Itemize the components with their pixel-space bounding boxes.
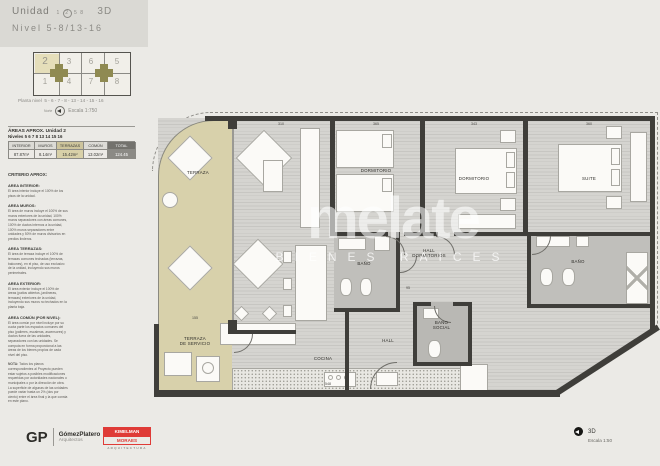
criteria-body-comun: El área común por nivel incluye por su c… — [8, 321, 68, 358]
terrace-table — [162, 192, 178, 208]
bidet — [360, 278, 372, 296]
caption-label: Planta nivel — [18, 98, 42, 103]
gomez-platero-logo: GP GómezPlatero Arquitectos — [26, 428, 100, 446]
wall-bano1-south — [334, 308, 400, 312]
nightstand — [606, 196, 622, 209]
shower — [626, 252, 648, 304]
dim-dormitorio2: 343 — [425, 122, 523, 126]
dining-chair — [283, 251, 292, 263]
unit-selector-row: Unidad 1 2 5 8 3D — [12, 6, 148, 18]
level-label: Nivel — [12, 23, 42, 33]
criteria-title-muros: AREA MUROS: — [8, 203, 68, 208]
criteria-body-exterior: El área exterior incluye el 100% de área… — [8, 287, 68, 310]
view-mode-label[interactable]: 3D — [97, 6, 112, 17]
burner — [328, 375, 333, 380]
logo-divider — [53, 428, 54, 446]
wall-right — [650, 116, 655, 332]
val-comun: 13.02m² — [84, 150, 108, 159]
wall-dorm1-dorm2 — [420, 116, 425, 234]
room-label-dormitorio1: DORMITORIO — [332, 168, 420, 173]
nightstand — [606, 126, 622, 139]
dim-cocina: 548 — [268, 382, 388, 386]
room-label-bano-suite: BAÑO — [548, 259, 608, 264]
north-icon — [55, 106, 65, 116]
key-plan-caption: Planta nivel 5 - 6 - 7 - 8 - 13 - 14 - 1… — [18, 98, 104, 103]
gp-subtitle: Arquitectos — [59, 438, 101, 443]
key-plan-gridline — [34, 73, 130, 74]
coffee-table — [263, 160, 283, 192]
dim-suite: 360 — [528, 122, 650, 126]
pillow — [611, 148, 620, 165]
gp-initials: GP — [26, 429, 48, 446]
key-plan-core-icon — [95, 69, 113, 77]
divider — [8, 126, 135, 127]
pillow — [506, 152, 515, 168]
wall-living-dorm1 — [330, 116, 335, 234]
col-terrazas: TERRAZAS — [57, 142, 84, 150]
note-body: Todos los planos correspondientes al Pro… — [8, 362, 68, 403]
wall-bano-social-north — [453, 302, 472, 306]
criteria-heading: CRITERIO APROX: — [8, 172, 68, 177]
footer-scale-label: Escala 1:50 — [588, 438, 612, 443]
dim-dormitorio1: 365 — [332, 122, 420, 126]
wall-bedroom-south — [404, 232, 438, 236]
km-line2: MORAES — [103, 436, 151, 445]
washer-drum — [202, 362, 214, 374]
wall-left-service — [154, 324, 159, 397]
keyplan-scale-label: Escala 1:750 — [68, 108, 97, 114]
room-label-hall-dormitorios: HALL DORMITORIOS — [398, 248, 460, 258]
unit-option-5[interactable]: 5 — [74, 10, 78, 16]
level-row: Nivel 5-8/13-16 — [12, 23, 148, 33]
area-table: ÁREAS APROX. Unidad 2 Niveles 5 6 7 8 13… — [8, 126, 135, 159]
val-muros: 8.14m² — [35, 150, 57, 159]
dining-table — [295, 245, 327, 321]
criteria-body-terrazas: El área de terraza incluye el 100% de te… — [8, 252, 68, 275]
nightstand — [500, 130, 516, 143]
wardrobe — [630, 132, 647, 202]
toilet — [340, 278, 352, 296]
criteria-title-exterior: AREA EXTERIOR: — [8, 281, 68, 286]
terrace-glass-line — [232, 120, 234, 330]
wall-bano-suite-south — [527, 304, 653, 308]
val-interior: 87.87m² — [9, 150, 35, 159]
area-table-grid: INTERIOR MUROS TERRAZAS COMÚN TOTAL 87.8… — [8, 141, 135, 159]
col-interior: INTERIOR — [9, 142, 35, 150]
dim-living: 310 — [232, 122, 330, 126]
caption-levels: 5 - 6 - 7 - 8 - 13 - 14 - 15 - 16 — [44, 98, 103, 103]
wardrobe — [458, 214, 516, 229]
key-plan-unit-5: 5 — [108, 57, 126, 66]
dining-chair — [283, 278, 292, 290]
criteria-title-terrazas: AREA TERRAZAS: — [8, 246, 68, 251]
criteria-body-muros: El área de muros incluye el 100% de sus … — [8, 209, 68, 241]
level-range: 5-8/13-16 — [47, 23, 104, 33]
wall-bano-social-south — [413, 362, 472, 366]
unit-option-1[interactable]: 1 — [56, 10, 60, 16]
nightstand — [500, 198, 516, 211]
km-subtitle: ARQUITECTURA — [103, 446, 151, 450]
room-label-bano1: BAÑO — [334, 261, 394, 266]
wall-bedroom-south — [330, 232, 388, 236]
key-plan-core-icon — [50, 69, 68, 77]
wall-bano-social-east — [468, 302, 472, 366]
bidet — [562, 268, 575, 286]
criteria-body-interior: El área interior incluye el 100% de los … — [8, 189, 68, 198]
wall-bedroom-south — [454, 232, 650, 236]
floor-plan: TERRAZA DORMITORIO DORMITORIO SUITE HALL… — [148, 106, 660, 408]
area-table-subtitle: Niveles 5 6 7 8 13 14 15 16 — [8, 134, 135, 139]
km-line1: KIMELMAN — [103, 427, 151, 436]
laundry-tub — [164, 352, 192, 376]
room-label-cocina: COCINA — [288, 356, 358, 361]
gp-name: GómezPlatero — [59, 431, 101, 438]
wall-bottom — [158, 390, 560, 397]
wall-top — [205, 116, 655, 121]
dim-pasillo: 95 — [388, 286, 428, 290]
vanity — [338, 238, 366, 250]
sofa — [300, 128, 320, 228]
north-label: Norte — [44, 109, 52, 113]
wall-dorm2-suite — [523, 116, 528, 234]
room-label-dormitorio2: DORMITORIO — [425, 176, 523, 181]
toilet — [428, 340, 441, 358]
criteria-title-interior: AREA INTERIOR: — [8, 183, 68, 188]
unit-option-8[interactable]: 8 — [80, 10, 84, 16]
pillow — [382, 178, 392, 192]
room-label-hall: HALL — [366, 338, 410, 343]
key-plan-unit-8: 8 — [108, 77, 126, 86]
bath-cabinet — [576, 236, 589, 247]
pillow — [382, 134, 392, 148]
wall-hall-west — [345, 312, 349, 390]
key-plan: 2 3 6 5 1 4 7 8 — [33, 52, 131, 96]
wall-bano-social-north — [413, 302, 431, 306]
kimelman-moraes-logo: KIMELMAN MORAES ARQUITECTURA — [103, 427, 151, 450]
val-terrazas: 15.42m² — [57, 150, 84, 159]
toilet — [540, 268, 553, 286]
key-plan-scale-row: Norte Escala 1:750 — [44, 106, 97, 116]
criteria-notes: CRITERIO APROX: AREA INTERIOR: El área i… — [8, 172, 68, 409]
key-plan-unit-4: 4 — [60, 77, 78, 86]
col-total: TOTAL — [108, 142, 136, 150]
criteria-title-comun: AREA COMÚN (POR NIVEL): — [8, 315, 68, 320]
unit-options: 1 2 5 8 — [56, 10, 86, 16]
wall-bano-suite-west — [527, 232, 531, 308]
key-plan-unit-1: 1 — [36, 77, 54, 86]
room-label-suite: SUITE — [528, 176, 650, 181]
dim-terraza: 155 — [160, 316, 230, 320]
col-muros: MUROS — [35, 142, 57, 150]
north-icon-footer — [574, 427, 583, 436]
key-plan-unit-6: 6 — [82, 57, 100, 66]
burner — [336, 375, 341, 380]
sheet-header: Unidad 1 2 5 8 3D Nivel 5-8/13-16 — [0, 0, 148, 47]
val-total: 124.45 — [108, 150, 136, 159]
key-plan-unit-2: 2 — [36, 56, 54, 67]
sheet-scale-block: 3D Escala 1:50 — [574, 427, 612, 443]
room-label-terraza: TERRAZA — [176, 170, 220, 175]
note-title: NOTA: — [8, 362, 18, 366]
key-plan-unit-3: 3 — [60, 57, 78, 66]
col-comun: COMÚN — [84, 142, 108, 150]
room-label-terraza-servicio: TERRAZA DE SERVICIO — [160, 336, 230, 346]
key-plan-unit-7: 7 — [82, 77, 100, 86]
unit-label: Unidad — [12, 6, 50, 17]
dining-chair — [283, 305, 292, 317]
room-label-bano-social: BAÑO SOCIAL — [415, 320, 468, 330]
wall-bano-social-west — [413, 302, 417, 366]
footer-view-mode: 3D — [588, 429, 596, 435]
unit-option-2-selected[interactable]: 2 — [63, 9, 72, 18]
fridge — [460, 364, 488, 391]
note-paragraph: NOTA: Todos los planos correspondientes … — [8, 362, 68, 403]
